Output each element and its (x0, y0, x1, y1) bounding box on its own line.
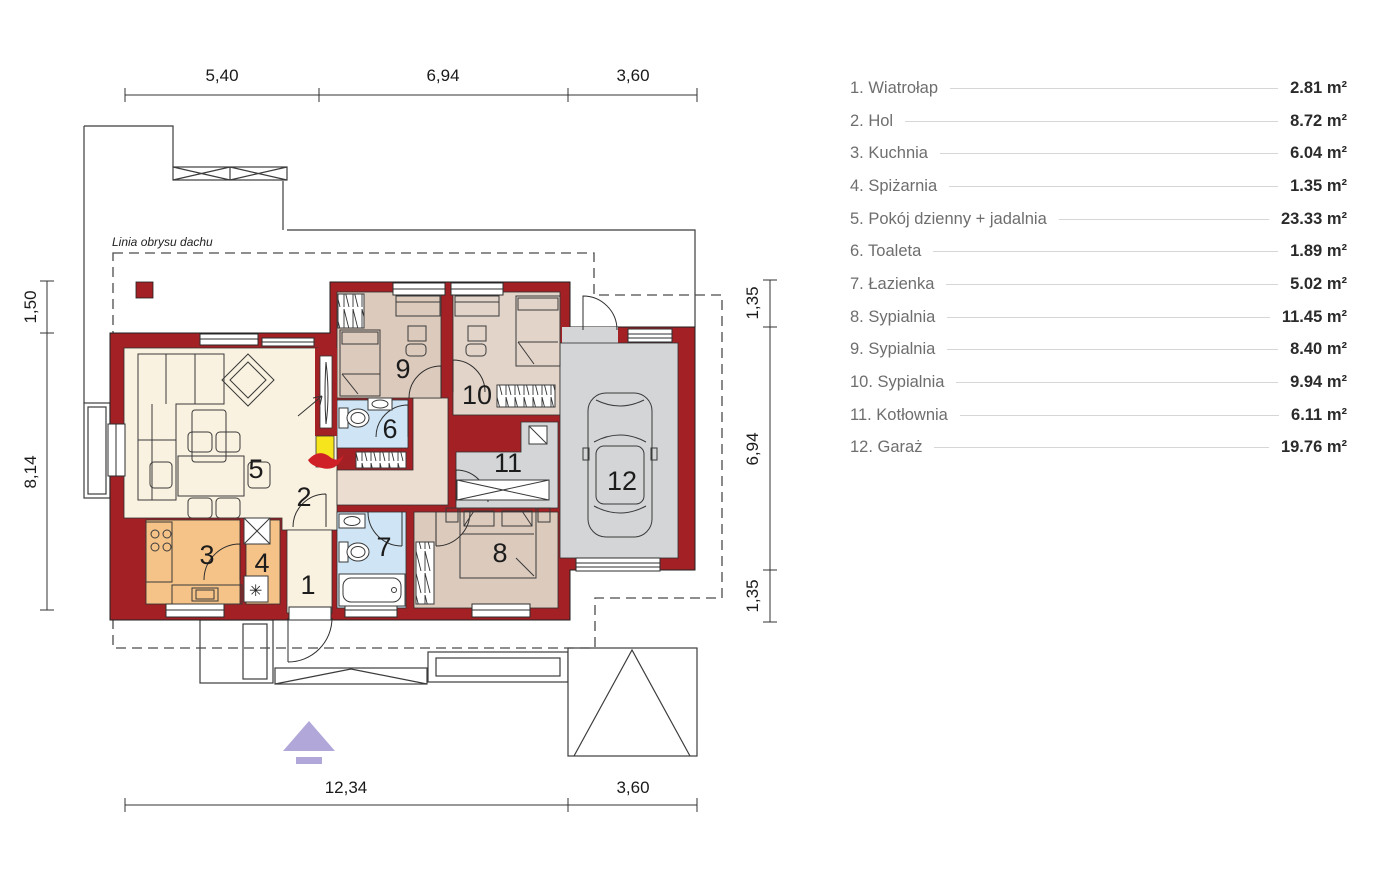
room-name: 2. Hol (850, 112, 893, 131)
toilet-6 (347, 409, 369, 427)
room-number-12: 12 (607, 466, 637, 496)
roof-outline-label: Linia obrysu dachu (112, 235, 213, 249)
room-number-1: 1 (300, 570, 315, 600)
legend-item: 8. Sypialnia 11.45 m² (850, 301, 1347, 334)
leader-line (940, 153, 1278, 154)
room-number-10: 10 (462, 380, 492, 410)
room-area: 1.35 m² (1290, 177, 1347, 196)
room-area: 5.02 m² (1290, 275, 1347, 294)
room-name: 1. Wiatrołap (850, 79, 938, 98)
leader-line (956, 382, 1278, 383)
room-area: 6.11 m² (1291, 406, 1347, 425)
leader-line (950, 88, 1278, 89)
dim-bottom-1: 12,34 (325, 778, 368, 797)
legend-item: 2. Hol 8.72 m² (850, 105, 1347, 138)
leader-line (949, 186, 1278, 187)
garage-driveway (568, 648, 697, 756)
leader-line (946, 284, 1278, 285)
room-legend: 1. Wiatrołap 2.81 m² 2. Hol 8.72 m² 3. K… (850, 72, 1347, 464)
dim-right-3: 1,35 (743, 579, 762, 612)
room-number-11: 11 (494, 448, 522, 478)
room-name: 12. Garaż (850, 438, 922, 457)
room-number-6: 6 (382, 414, 397, 444)
legend-item: 10. Sypialnia 9.94 m² (850, 366, 1347, 399)
room-name: 11. Kotłownia (850, 406, 948, 425)
room-name: 7. Łazienka (850, 275, 934, 294)
dim-top-1: 5,40 (205, 66, 238, 85)
room-3-kitchen-floor (146, 520, 240, 604)
vestibule-exterior-door (288, 618, 332, 662)
room-number-5: 5 (248, 454, 263, 484)
dimension-right: 1,35 6,94 1,35 (743, 280, 777, 622)
toilet-7 (347, 543, 369, 561)
room-number-8: 8 (492, 538, 507, 568)
room-area: 1.89 m² (1290, 242, 1347, 261)
dim-left-1: 1,50 (21, 290, 40, 323)
garage-door (576, 558, 660, 571)
room-number-7: 7 (376, 532, 391, 562)
chimney (136, 282, 153, 298)
legend-item: 4. Spiżarnia 1.35 m² (850, 170, 1347, 203)
left-terrace (84, 403, 110, 498)
room-area: 23.33 m² (1281, 210, 1347, 229)
room-name: 6. Toaleta (850, 242, 921, 261)
dim-bottom-2: 3,60 (616, 778, 649, 797)
room-number-2: 2 (296, 482, 311, 512)
leader-line (934, 447, 1268, 448)
legend-item: 7. Łazienka 5.02 m² (850, 268, 1347, 301)
legend-item: 6. Toaleta 1.89 m² (850, 235, 1347, 268)
floor-plan-drawing: Linia obrysu dachu (0, 0, 800, 889)
entry-steps (200, 620, 568, 684)
car-icon (583, 393, 657, 537)
freezer-icon: ✳ (249, 583, 262, 600)
room-area: 8.72 m² (1290, 112, 1347, 131)
room-name: 5. Pokój dzienny + jadalnia (850, 210, 1047, 229)
legend-item: 12. Garaż 19.76 m² (850, 432, 1347, 465)
room-area: 11.45 m² (1282, 308, 1347, 327)
floor-plan-page: Linia obrysu dachu (0, 0, 1400, 889)
room-area: 6.04 m² (1290, 144, 1347, 163)
dim-right-2: 6,94 (743, 432, 762, 465)
dim-top-2: 6,94 (426, 66, 459, 85)
leader-line (1059, 219, 1269, 220)
room-name: 10. Sypialnia (850, 373, 944, 392)
dim-right-1: 1,35 (743, 286, 762, 319)
room-name: 3. Kuchnia (850, 144, 928, 163)
room-area: 8.40 m² (1290, 340, 1347, 359)
leader-line (933, 251, 1278, 252)
room-number-9: 9 (395, 354, 410, 384)
leader-line (960, 415, 1279, 416)
room-number-3: 3 (199, 540, 214, 570)
entrance-arrow-icon (283, 721, 335, 764)
leader-line (947, 317, 1270, 318)
dim-top-3: 3,60 (616, 66, 649, 85)
room-area: 19.76 m² (1281, 438, 1347, 457)
legend-item: 11. Kotłownia 6.11 m² (850, 399, 1347, 432)
dimension-left: 1,50 8,14 (21, 281, 54, 610)
dim-left-2: 8,14 (21, 455, 40, 488)
dimension-bottom: 12,34 3,60 (125, 778, 697, 812)
room-number-4: 4 (254, 548, 269, 578)
legend-item: 3. Kuchnia 6.04 m² (850, 137, 1347, 170)
legend-item: 5. Pokój dzienny + jadalnia 23.33 m² (850, 203, 1347, 236)
room-name: 9. Sypialnia (850, 340, 935, 359)
room-area: 9.94 m² (1290, 373, 1347, 392)
legend-item: 1. Wiatrołap 2.81 m² (850, 72, 1347, 105)
room-area: 2.81 m² (1290, 79, 1347, 98)
room-name: 4. Spiżarnia (850, 177, 937, 196)
dimension-top: 5,40 6,94 3,60 (125, 66, 697, 102)
front-door-opening (289, 607, 331, 620)
legend-item: 9. Sypialnia 8.40 m² (850, 334, 1347, 367)
entry-door (583, 296, 617, 330)
entry-porch-floor (562, 327, 618, 344)
leader-line (905, 121, 1278, 122)
room-name: 8. Sypialnia (850, 308, 935, 327)
bathtub (339, 574, 405, 606)
leader-line (947, 349, 1278, 350)
